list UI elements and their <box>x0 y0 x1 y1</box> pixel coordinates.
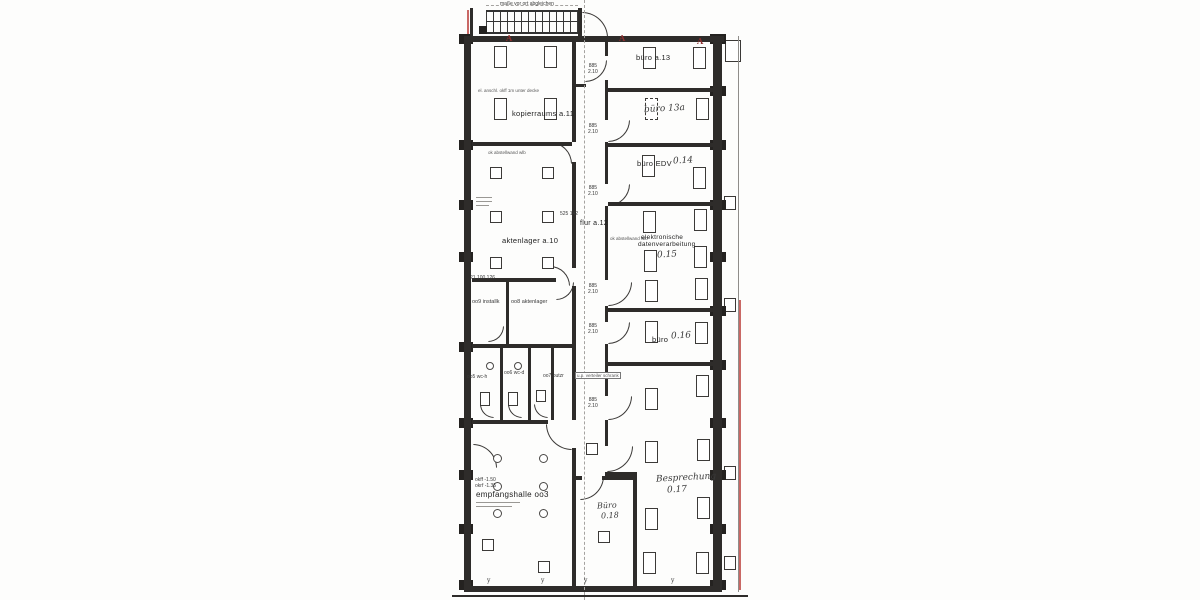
desk <box>645 388 658 410</box>
room-number-018: 0.18 <box>601 511 619 521</box>
wall <box>464 36 471 592</box>
illegible-note-line <box>476 502 520 503</box>
desk <box>693 47 706 69</box>
desk <box>693 167 706 189</box>
survey-mark: y <box>487 577 490 584</box>
wall <box>605 420 608 446</box>
room-label-buero-013: büro a.13 <box>636 53 670 62</box>
shelf-unit <box>490 211 502 223</box>
desk <box>696 375 709 397</box>
wall <box>500 346 503 420</box>
room-label-install: oo9 installk <box>472 299 500 305</box>
markup-letter-a: A <box>697 36 703 46</box>
wall <box>576 476 582 480</box>
room-label-kopierraum: kopierraums a.11 <box>512 109 574 118</box>
room-label-empfangshalle: empfangshalle oo3 <box>476 490 549 499</box>
shelf-unit <box>598 531 610 543</box>
door-arc <box>550 266 570 286</box>
wall <box>506 282 509 344</box>
wall <box>578 8 582 36</box>
illegible-note-line <box>476 205 489 206</box>
sink-fixture <box>514 362 522 370</box>
wall <box>605 80 608 120</box>
room-label-buero-018: Büro <box>597 500 617 510</box>
door-arc <box>608 120 630 142</box>
room-label-buero-016: büro <box>652 335 668 344</box>
desk <box>696 98 709 120</box>
room-label-edv-1: elektronische <box>641 234 683 241</box>
room-number-017: 0.17 <box>667 484 688 495</box>
wall <box>551 346 554 420</box>
hall-column <box>539 509 548 518</box>
desk <box>645 441 658 463</box>
desk <box>695 278 708 300</box>
desk <box>697 439 710 461</box>
room-label-flur: flur a.12 <box>580 220 608 227</box>
room-label-wc-h: oo5 wc-h <box>467 374 487 380</box>
door-dimension: 8852.10 <box>588 324 598 336</box>
wall <box>528 346 531 420</box>
facade-line <box>738 36 739 592</box>
wc-fixture <box>536 390 546 402</box>
room-label-aktenlager-a10: aktenlager a.10 <box>502 236 558 245</box>
shelf-unit <box>542 257 554 269</box>
room-label-buero-013a: büro 13a <box>644 103 685 115</box>
shelf-unit <box>586 443 598 455</box>
wall <box>572 448 576 586</box>
wc-fixture <box>508 392 518 406</box>
desk <box>643 552 656 574</box>
desk <box>694 246 707 268</box>
door-arc <box>582 12 608 38</box>
kopierraum-note: el. anschl. okff 1m unter decke <box>478 88 539 93</box>
door-arc <box>608 396 632 420</box>
room-label-aktenlager-008: oo8 aktenlager <box>511 299 547 305</box>
survey-mark: y <box>584 577 587 584</box>
wall <box>605 206 608 280</box>
wall <box>472 142 572 146</box>
sink-fixture <box>486 362 494 370</box>
axis-centerline <box>584 0 585 600</box>
wall <box>464 36 724 42</box>
wall <box>605 472 637 476</box>
room-number-014: 0.14 <box>673 155 694 166</box>
door-dimension: 8852.10 <box>588 186 598 198</box>
level-okrf: okrf -1.35 <box>475 483 496 489</box>
room-label-besprechung: Besprechung <box>656 471 717 484</box>
wall <box>605 142 608 184</box>
room-number-015: 0.15 <box>657 249 678 260</box>
door-arc <box>607 446 633 472</box>
shelf-unit <box>542 167 554 179</box>
hall-column <box>493 454 502 463</box>
cabinet-label: u.p. verteiler schrank <box>575 372 621 379</box>
desk <box>494 46 507 68</box>
shelf-unit <box>482 539 494 551</box>
wall <box>608 308 713 312</box>
shelf-unit <box>538 561 550 573</box>
door-arc <box>608 282 632 306</box>
door-arc <box>508 404 522 418</box>
wall <box>472 344 572 348</box>
desk <box>494 98 507 120</box>
stair-handrail <box>486 21 578 22</box>
wall <box>572 42 576 142</box>
room-number-016: 0.16 <box>671 330 692 341</box>
door-dimension: 8852.10 <box>588 64 598 76</box>
wall-note-1: ok abstellwand wlb <box>488 150 526 155</box>
wall <box>605 344 608 396</box>
desk <box>644 250 657 272</box>
markup-letter-a: A <box>506 33 512 43</box>
red-markup-line <box>739 300 741 590</box>
wall <box>605 42 608 56</box>
wall <box>608 362 713 366</box>
wall <box>464 586 722 592</box>
left-dimension-string: 21 100 126 <box>470 275 495 281</box>
wall <box>608 202 713 206</box>
corridor-dimensions: 525 142 <box>560 211 578 217</box>
desk <box>544 46 557 68</box>
facade-element <box>724 556 736 570</box>
shelf-unit <box>542 211 554 223</box>
door-arc <box>534 404 548 418</box>
wall <box>602 476 635 480</box>
wall <box>633 476 637 586</box>
desk <box>695 322 708 344</box>
door-dimension: 8852.10 <box>588 398 598 410</box>
desk <box>696 552 709 574</box>
door-arc <box>608 322 630 344</box>
desk <box>694 209 707 231</box>
floor-plan-scan: maße vor ort abgleichen kopierraums a.11… <box>0 0 1200 600</box>
desk <box>643 211 656 233</box>
illegible-note-line <box>476 197 492 198</box>
wall <box>472 420 548 424</box>
room-label-wc-d: oo6 wc-d <box>504 370 524 376</box>
markup-letter-a: A <box>619 33 625 43</box>
illegible-note-line <box>476 201 492 202</box>
wc-fixture <box>480 392 490 406</box>
room-label-buero-edv: büro EDV <box>637 159 672 168</box>
door-dimension: 8852.10 <box>588 124 598 136</box>
hall-column <box>539 454 548 463</box>
illegible-note-line <box>476 506 512 507</box>
door-dimension: 8852.10 <box>588 284 598 296</box>
desk <box>697 497 710 519</box>
room-label-putzraum: oo7 putzr <box>543 373 564 379</box>
survey-mark: y <box>671 577 674 584</box>
wall <box>608 143 713 147</box>
shelf-unit <box>490 257 502 269</box>
survey-mark: y <box>541 577 544 584</box>
desk <box>645 280 658 302</box>
door-arc <box>488 326 504 342</box>
wall <box>452 595 748 597</box>
wall <box>608 88 713 92</box>
hall-column <box>493 509 502 518</box>
door-arc <box>546 424 572 450</box>
wall <box>470 8 473 36</box>
wall <box>572 286 576 420</box>
desk <box>645 508 658 530</box>
exterior-staircase <box>486 10 578 34</box>
stair-newel-post <box>479 26 487 34</box>
stair-note: maße vor ort abgleichen <box>500 1 554 7</box>
door-arc <box>480 404 494 418</box>
wall <box>605 306 608 322</box>
room-label-edv-2: datenverarbeitung <box>638 241 696 248</box>
shelf-unit <box>490 167 502 179</box>
wall <box>713 36 722 592</box>
